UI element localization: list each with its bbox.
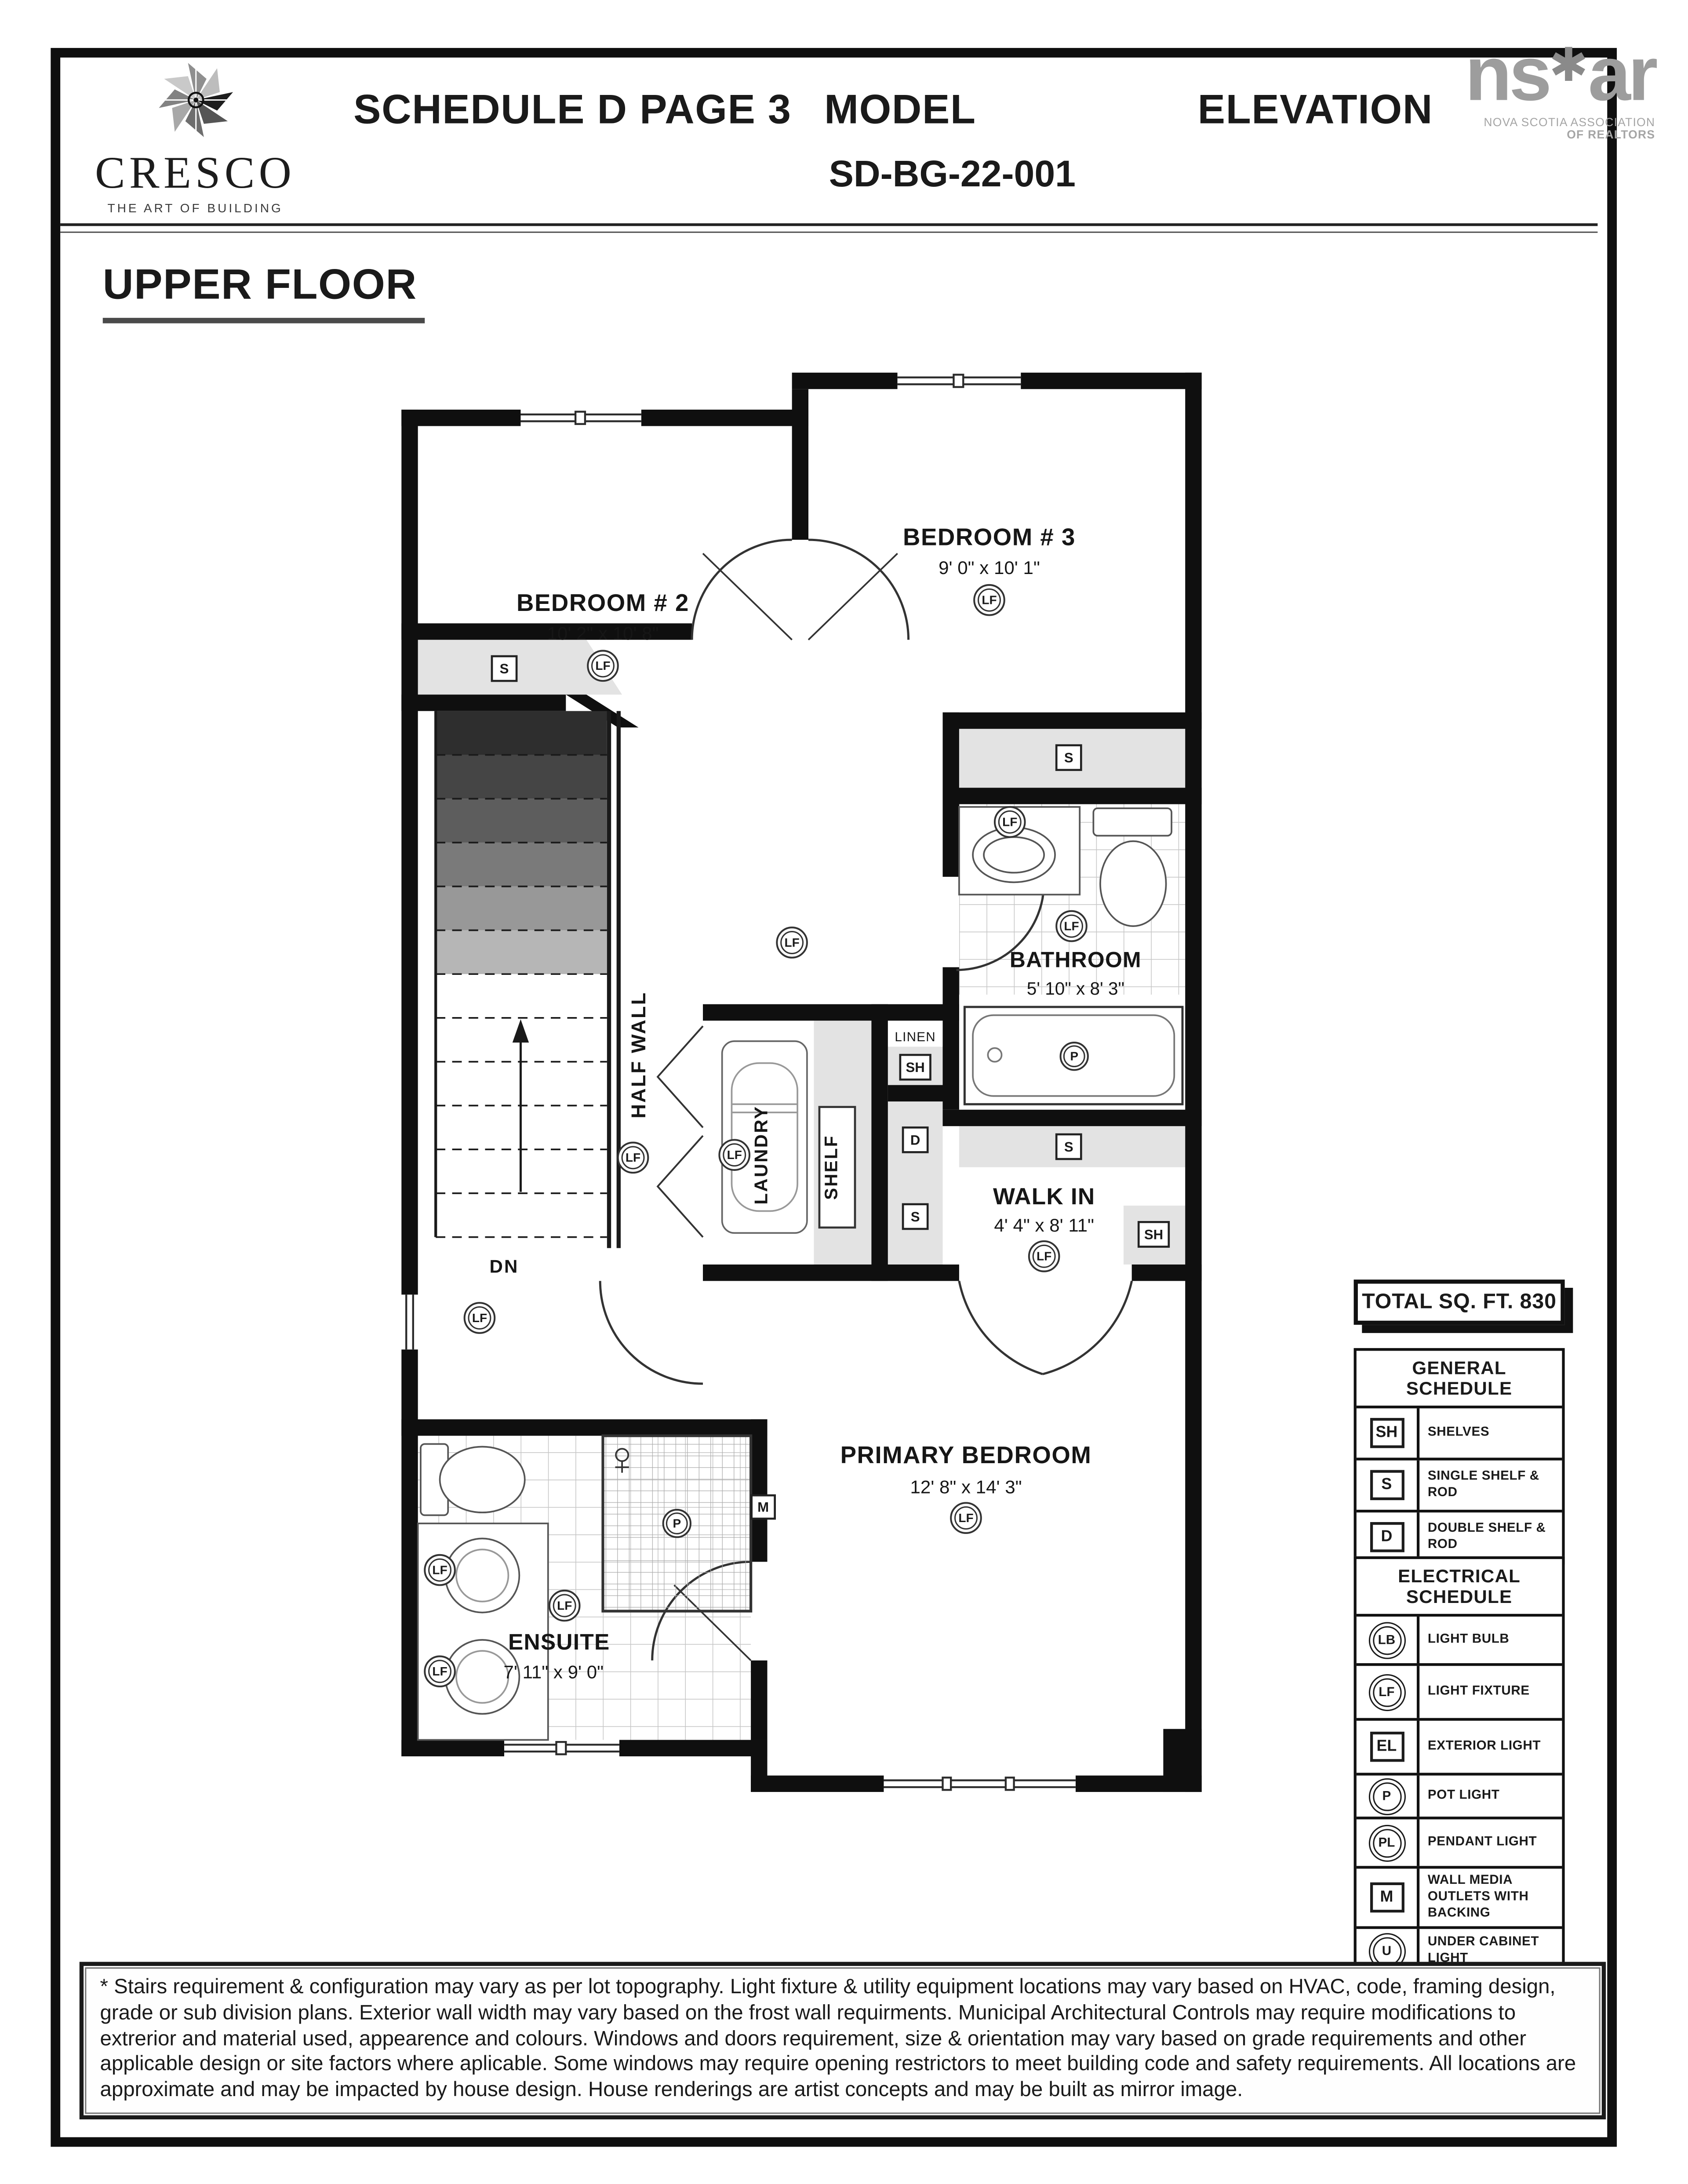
schedule-row: P POT LIGHT	[1357, 1776, 1562, 1820]
schedule-row-label: SINGLE SHELF & ROD	[1419, 1463, 1562, 1507]
total-sqft-box: TOTAL SQ. FT. 830	[1354, 1279, 1565, 1325]
floor-title: UPPER FLOOR	[103, 260, 426, 323]
schedule-row-label: DOUBLE SHELF & ROD	[1419, 1515, 1562, 1559]
cresco-tagline: THE ART OF BUILDING	[55, 201, 336, 215]
lf-symbol: LF	[1368, 1673, 1405, 1710]
nsar-star-icon: ✱	[1549, 40, 1588, 91]
cresco-logo: CRESCO THE ART OF BUILDING	[55, 60, 336, 215]
schedule-row-label: WALL MEDIA OUTLETS WITH BACKING	[1419, 1868, 1562, 1927]
schedule-row: S SINGLE SHELF & ROD	[1357, 1461, 1562, 1512]
schedule-row: LF LIGHT FIXTURE	[1357, 1666, 1562, 1721]
schedule-row: LB LIGHT BULB	[1357, 1617, 1562, 1666]
lb-symbol: LB	[1368, 1621, 1405, 1658]
cresco-pinwheel-icon	[156, 60, 235, 140]
header-separator	[60, 223, 1597, 233]
schedule-row-label: EXTERIOR LIGHT	[1419, 1733, 1545, 1760]
nsar-ar: ar	[1588, 30, 1655, 116]
schedule-row: PL PENDANT LIGHT	[1357, 1819, 1562, 1868]
schedule-row-label: POT LIGHT	[1419, 1782, 1504, 1810]
nsar-logo: ns✱ar NOVA SCOTIA ASSOCIATION OF REALTOR…	[1408, 36, 1655, 140]
sh-symbol: SH	[1369, 1418, 1404, 1448]
cresco-wordmark: CRESCO	[55, 149, 336, 200]
d-symbol: D	[1369, 1522, 1404, 1552]
electrical-schedule-title: ELECTRICAL SCHEDULE	[1357, 1559, 1562, 1617]
disclaimer: * Stairs requirement & configuration may…	[80, 1962, 1606, 2119]
s-symbol: S	[1369, 1470, 1404, 1501]
schedule-title: SCHEDULE D PAGE 3	[353, 87, 781, 134]
schedule-row: M WALL MEDIA OUTLETS WITH BACKING	[1357, 1869, 1562, 1929]
schedule-row-label: PENDANT LIGHT	[1419, 1829, 1541, 1856]
el-symbol: EL	[1369, 1732, 1404, 1762]
nsar-tagline-2: OF REALTORS	[1408, 128, 1655, 139]
pl-symbol: PL	[1368, 1824, 1405, 1861]
model-number: SD-BG-22-001	[795, 153, 1110, 196]
electrical-schedule: ELECTRICAL SCHEDULE LB LIGHT BULB LF LIG…	[1354, 1556, 1565, 1976]
page: LF LF LF LF LF LF LF LF P LF LF LF LF LF…	[0, 0, 1688, 2184]
schedule-row: D DOUBLE SHELF & ROD	[1357, 1512, 1562, 1562]
schedule-row: EL EXTERIOR LIGHT	[1357, 1721, 1562, 1776]
nsar-tagline-1: NOVA SCOTIA ASSOCIATION	[1408, 116, 1655, 128]
schedule-row: SH SHELVES	[1357, 1408, 1562, 1460]
general-schedule-title: GENERAL SCHEDULE	[1357, 1351, 1562, 1408]
model-label: MODEL	[818, 87, 982, 134]
elevation-label: ELEVATION	[1192, 87, 1439, 134]
m-symbol: M	[1369, 1882, 1404, 1913]
general-schedule: GENERAL SCHEDULE SH SHELVES S SINGLE SHE…	[1354, 1348, 1565, 1564]
nsar-ns: ns	[1465, 30, 1549, 116]
schedule-row-label: SHELVES	[1419, 1419, 1493, 1446]
schedule-row-label: LIGHT BULB	[1419, 1626, 1513, 1653]
schedule-row-label: LIGHT FIXTURE	[1419, 1679, 1534, 1706]
p-symbol: P	[1368, 1777, 1405, 1814]
